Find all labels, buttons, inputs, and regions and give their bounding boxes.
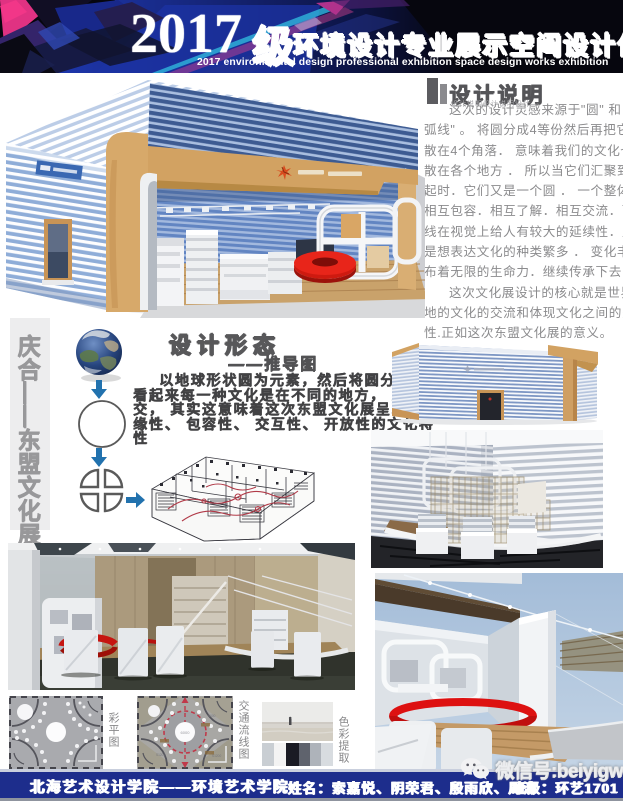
svg-text:6000: 6000 bbox=[181, 730, 191, 735]
svg-text:S1200: S1200 bbox=[212, 754, 221, 758]
svg-text:S1200: S1200 bbox=[156, 753, 165, 757]
svg-text:S600: S600 bbox=[208, 714, 216, 718]
